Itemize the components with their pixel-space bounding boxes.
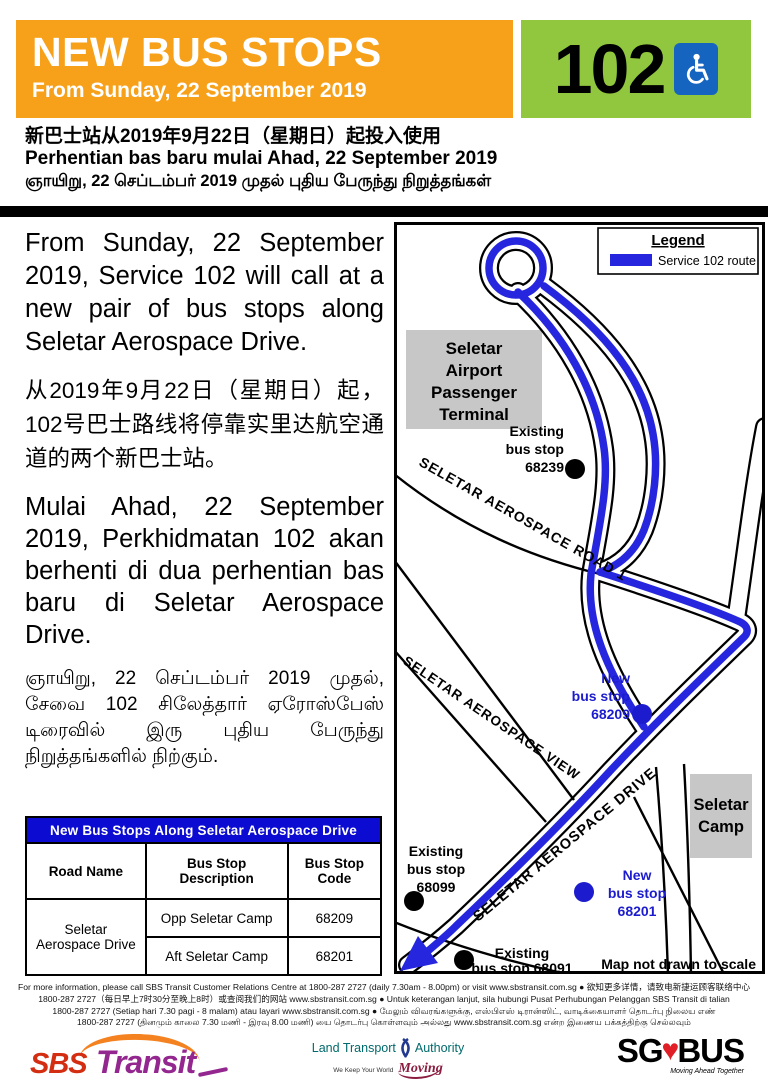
- svg-text:Existing: Existing: [495, 945, 549, 961]
- code-cell: 68209: [288, 899, 381, 937]
- paragraph-english: From Sunday, 22 September 2019, Service …: [25, 227, 384, 359]
- header-tamil: ஞாயிறு, 22 செப்டம்பர் 2019 முதல் புதிய ப…: [25, 170, 755, 193]
- col-description: Bus Stop Description: [146, 843, 288, 899]
- route-number: 102: [554, 34, 665, 104]
- new-bus-stops-table: New Bus Stops Along Seletar Aerospace Dr…: [25, 816, 382, 976]
- svg-text:Camp: Camp: [698, 818, 744, 836]
- svg-text:bus stop: bus stop: [506, 441, 564, 457]
- terminal-label: Seletar: [446, 339, 503, 358]
- svg-text:New: New: [623, 867, 652, 883]
- lta-ribbon-icon: [399, 1038, 412, 1058]
- lta-text-right: Authority: [415, 1041, 464, 1055]
- sbs-transit-logo: SBS Transit: [30, 1036, 230, 1082]
- paragraph-malay: Mulai Ahad, 22 September 2019, Perkhidma…: [25, 491, 384, 651]
- header-chinese: 新巴士站从2019年9月22日（星期日）起投入使用: [25, 126, 755, 148]
- sgbus-bus-text: BUS: [677, 1034, 744, 1067]
- wheelchair-accessible-icon: [674, 43, 718, 95]
- footer-line-malay-tamil: 1800-287 2727 (Setiap hari 7.30 pagi - 8…: [14, 1006, 754, 1018]
- svg-text:New: New: [601, 670, 630, 686]
- sbs-tail-graphic: [198, 1067, 228, 1077]
- footer-line-english-chinese: For more information, please call SBS Tr…: [14, 982, 754, 994]
- footer-line-tamil: 1800-287 2727 (தினமும் காலை 7.30 மணி - இ…: [14, 1017, 754, 1029]
- svg-text:68099: 68099: [417, 879, 456, 895]
- col-code: Bus Stop Code: [288, 843, 381, 899]
- lta-moving-script: Moving: [398, 1061, 442, 1079]
- sbs-logo-text: SBS: [30, 1048, 87, 1081]
- route-badge: 102: [521, 20, 751, 118]
- legend-route-swatch: [610, 254, 652, 266]
- existing-stop-dot: [565, 459, 585, 479]
- logo-row: SBS Transit Land Transport Authority We …: [0, 1032, 768, 1084]
- heart-icon: ♥: [662, 1036, 679, 1066]
- poster-title: NEW BUS STOPS: [32, 30, 513, 75]
- header-malay: Perhentian bas baru mulai Ahad, 22 Septe…: [25, 148, 755, 170]
- svg-text:Passenger: Passenger: [431, 383, 517, 402]
- secondary-roads: [394, 474, 724, 974]
- new-stop-dot: [632, 704, 652, 724]
- poster: NEW BUS STOPS From Sunday, 22 September …: [0, 0, 768, 1086]
- col-road-name: Road Name: [26, 843, 146, 899]
- stop-68201: New bus stop 68201: [574, 867, 666, 919]
- new-stop-dot: [574, 882, 594, 902]
- legend-title: Legend: [651, 232, 704, 249]
- table-title-row: New Bus Stops Along Seletar Aerospace Dr…: [26, 817, 381, 843]
- road-name-cell: Seletar Aerospace Drive: [26, 899, 146, 975]
- svg-text:bus stop: bus stop: [572, 688, 630, 704]
- svg-text:bus stop: bus stop: [407, 861, 465, 877]
- map-legend: Legend Service 102 route: [598, 228, 758, 274]
- road-label-seletar-aerospace-view: SELETAR AEROSPACE VIEW: [400, 653, 583, 783]
- paragraph-tamil: ஞாயிறு, 22 செப்டம்பர் 2019 முதல், சேவை 1…: [25, 666, 384, 770]
- stop-68209: New bus stop 68209: [572, 670, 652, 724]
- sgbus-tagline: Moving Ahead Together: [594, 1068, 744, 1075]
- divider-bar: [0, 206, 768, 217]
- table-row: Seletar Aerospace Drive Opp Seletar Camp…: [26, 899, 381, 937]
- body-text: From Sunday, 22 September 2019, Service …: [25, 227, 384, 770]
- svg-text:68209: 68209: [591, 706, 630, 722]
- terminal-area: Seletar Airport Passenger Terminal: [406, 330, 542, 429]
- footer-contact-info: For more information, please call SBS Tr…: [14, 982, 754, 1029]
- poster-subtitle: From Sunday, 22 September 2019: [32, 79, 513, 103]
- lta-text-left: Land Transport: [312, 1041, 396, 1055]
- trilingual-header: 新巴士站从2019年9月22日（星期日）起投入使用 Perhentian bas…: [25, 126, 755, 193]
- route-map: Seletar Airport Passenger Terminal Selet…: [394, 222, 765, 974]
- code-cell: 68201: [288, 937, 381, 975]
- stop-68239: Existing bus stop 68239: [506, 423, 585, 479]
- stop-68099: Existing bus stop 68099: [404, 843, 465, 911]
- description-cell: Opp Seletar Camp: [146, 899, 288, 937]
- svg-text:Existing: Existing: [510, 423, 564, 439]
- svg-text:Existing: Existing: [409, 843, 463, 859]
- svg-text:68201: 68201: [618, 903, 657, 919]
- header-banner: NEW BUS STOPS From Sunday, 22 September …: [16, 20, 513, 118]
- sgbus-sg-text: SG: [617, 1034, 663, 1067]
- legend-route-label: Service 102 route: [658, 254, 756, 268]
- camp-area: Seletar Camp: [690, 774, 752, 858]
- lta-logo: Land Transport Authority We Keep Your Wo…: [308, 1038, 468, 1079]
- paragraph-chinese: 从2019年9月22日（星期日）起，102号巴士路线将停靠实里达航空通道的两个新…: [25, 374, 384, 476]
- map-scale-note: Map not drawn to scale: [601, 956, 756, 972]
- camp-label: Seletar: [693, 796, 749, 814]
- transit-logo-text: Transit: [96, 1044, 195, 1081]
- svg-text:bus stop: bus stop: [608, 885, 666, 901]
- table-title: New Bus Stops Along Seletar Aerospace Dr…: [26, 817, 381, 843]
- lta-tagline: We Keep Your World: [333, 1067, 393, 1074]
- table-header-row: Road Name Bus Stop Description Bus Stop …: [26, 843, 381, 899]
- svg-text:Terminal: Terminal: [439, 405, 509, 424]
- svg-text:Airport: Airport: [446, 361, 503, 380]
- sgbus-logo: SG ♥ BUS Moving Ahead Together: [594, 1034, 744, 1075]
- footer-line-chinese-malay: 1800-287 2727（每日早上7时30分至晚上8时）或查阅我们的网站 ww…: [14, 994, 754, 1006]
- svg-text:68239: 68239: [525, 459, 564, 475]
- description-cell: Aft Seletar Camp: [146, 937, 288, 975]
